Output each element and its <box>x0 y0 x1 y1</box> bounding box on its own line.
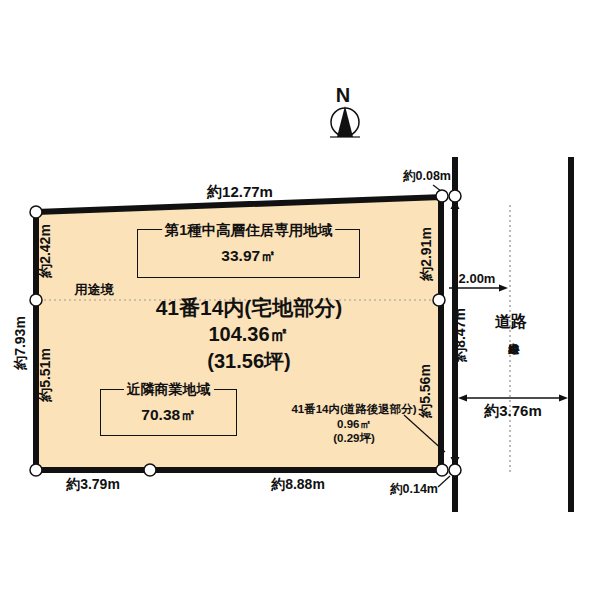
road-label: 道路 <box>495 313 527 331</box>
road-width-label: 約3.76m <box>484 403 542 420</box>
setback-area-tsubo: (0.29坪) <box>291 431 416 446</box>
parcel-area-m2: 104.36㎡ <box>208 323 289 345</box>
north-label: N <box>336 84 350 106</box>
dim-top: 約12.77m <box>207 184 273 201</box>
commercial-zone-name: 近隣商業地域 <box>124 381 214 399</box>
setback-note: 41番14内(道路後退部分) 0.96㎡ (0.29坪) <box>291 402 416 446</box>
land-plot-diagram: N 約12.77m 約0.08m 約2.42m 約7.93m 約5.51m 約2… <box>0 0 600 600</box>
road-half-width-label: 2.00m <box>459 272 496 286</box>
dim-top-right-gap: 約0.08m <box>403 170 451 184</box>
dim-road-side: 約8.47m <box>453 308 468 362</box>
use-boundary-label: 用途境 <box>75 283 114 297</box>
residential-zone-area: 33.97㎡ <box>138 246 359 267</box>
dim-bottom-left: 約3.79m <box>66 477 120 492</box>
compass-icon <box>330 106 360 137</box>
parcel-area-tsubo: (31.56坪) <box>207 350 290 372</box>
dim-bottom-right-gap: 約0.14m <box>390 483 438 497</box>
road-width-arrow <box>458 395 568 402</box>
residential-zone-box: 第1種中高層住居専用地域 33.97㎡ <box>137 229 360 278</box>
dim-left-lower: 約5.51m <box>38 348 53 402</box>
gap-bottom-pointer-line <box>438 476 450 487</box>
dim-bottom-right: 約8.88m <box>271 477 325 492</box>
dim-left-total: 約7.93m <box>13 316 28 370</box>
dim-left-upper: 約2.42m <box>38 224 53 278</box>
commercial-zone-box: 近隣商業地域 70.38㎡ <box>100 389 237 436</box>
setback-title: 41番14内(道路後退部分) <box>291 402 416 417</box>
commercial-zone-area: 70.38㎡ <box>101 405 236 426</box>
parcel-title: 41番14内(宅地部分) <box>156 296 343 319</box>
setback-area-m2: 0.96㎡ <box>291 417 416 432</box>
dim-right-upper: 約2.91m <box>419 227 434 281</box>
residential-zone-name: 第1種中高層住居専用地域 <box>162 221 336 240</box>
dim-right-lower: 約5.56m <box>418 364 433 418</box>
